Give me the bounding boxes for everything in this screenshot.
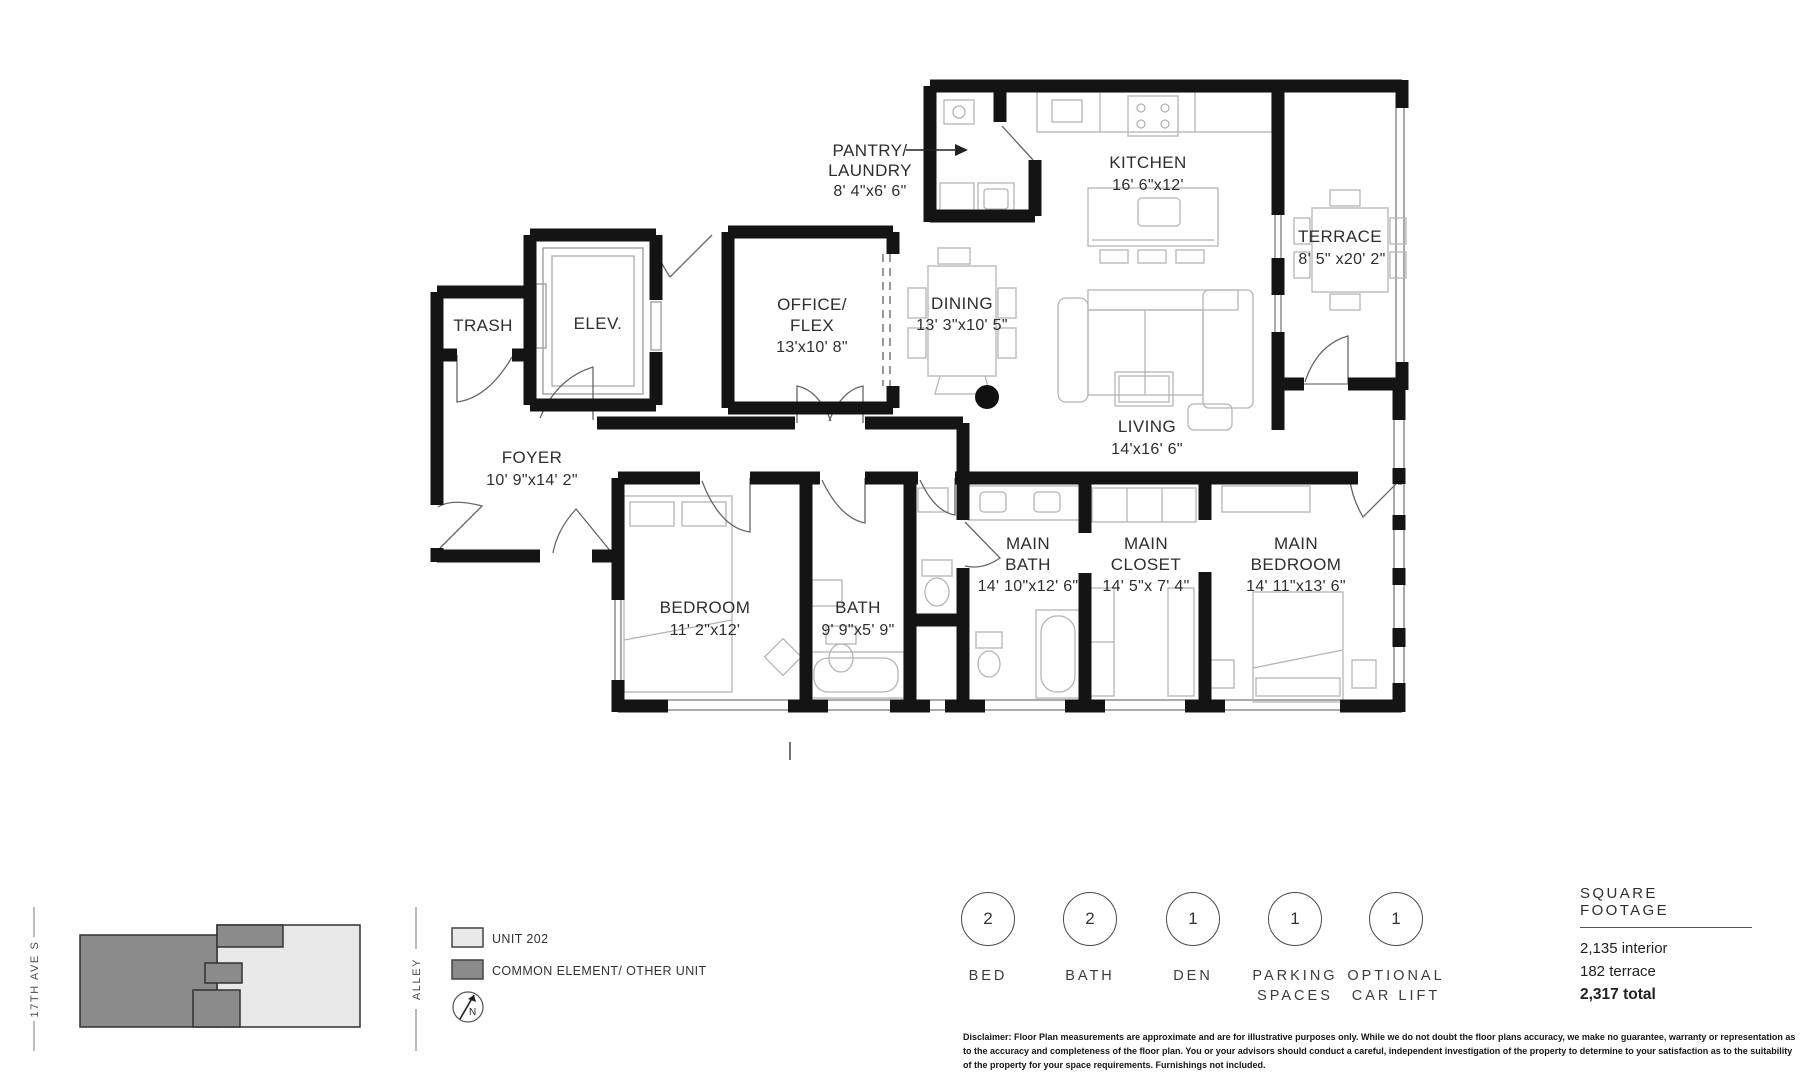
legend-label-unit: UNIT 202 (492, 932, 548, 946)
north-compass-icon: N (453, 992, 483, 1022)
room-label-office: OFFICE/ (777, 295, 847, 314)
room-label-pantry: PANTRY/ (833, 141, 908, 160)
room-label-pantry: LAUNDRY (828, 161, 912, 180)
room-dim-bedroom: 11' 2"x12' (670, 622, 741, 639)
svg-text:17TH AVE S: 17TH AVE S (29, 941, 41, 1018)
room-label-main-closet: CLOSET (1111, 555, 1181, 574)
room-label-main-bedroom: BEDROOM (1251, 555, 1342, 574)
street-left: 17TH AVE S (29, 907, 41, 1051)
room-dim-main-closet: 14' 5"x 7' 4" (1102, 578, 1189, 595)
room-dim-main-bedroom: 14' 11"x13' 6" (1246, 578, 1346, 595)
stat-parking-count: 1 (1268, 892, 1322, 946)
room-label-kitchen: KITCHEN (1109, 153, 1186, 172)
room-dim-kitchen: 16' 6"x12' (1112, 177, 1184, 194)
stat-car-lift-count: 1 (1369, 892, 1423, 946)
room-label-main-bath: BATH (1005, 555, 1051, 574)
sqft-total: 2,317 total (1580, 983, 1790, 1006)
room-dim-living: 14'x16' 6" (1111, 441, 1183, 458)
stat-den-count: 1 (1166, 892, 1220, 946)
north-label: N (469, 1007, 476, 1018)
square-footage: SQUARE FOOTAGE 2,135 interior 182 terrac… (1580, 885, 1790, 1006)
legend-swatch-unit (452, 928, 483, 947)
sqft-interior: 2,135 interior (1580, 938, 1790, 961)
sqft-terrace: 182 terrace (1580, 961, 1790, 984)
room-label-elevator: ELEV. (574, 314, 623, 333)
square-footage-title: SQUARE FOOTAGE (1580, 885, 1752, 928)
room-label-main-bedroom: MAIN (1274, 534, 1318, 553)
room-dim-bath: 9' 9"x5' 9" (821, 622, 894, 639)
room-dim-office: 13'x10' 8" (776, 339, 848, 356)
room-label-bedroom: BEDROOM (660, 598, 751, 617)
legend-label-common: COMMON ELEMENT/ OTHER UNIT (492, 964, 707, 978)
pantry-arrow (906, 144, 968, 156)
disclaimer-text: Disclaimer: Floor Plan measurements are … (963, 1031, 1798, 1073)
legend-swatch-common (452, 960, 483, 979)
room-dim-terrace: 8' 5" x20' 2" (1298, 251, 1385, 268)
room-label-main-bath: MAIN (1006, 534, 1050, 553)
room-dim-foyer: 10' 9"x14' 2" (486, 472, 578, 489)
room-label-dining: DINING (931, 294, 993, 313)
room-dim-pantry: 8' 4"x6' 6" (833, 183, 906, 200)
room-label-living: LIVING (1118, 417, 1176, 436)
room-dim-main-bath: 14' 10"x12' 6" (978, 578, 1079, 595)
room-label-main-closet: MAIN (1124, 534, 1168, 553)
office-dashed-opening (883, 254, 890, 386)
room-label-foyer: FOYER (502, 448, 563, 467)
room-label-office: FLEX (790, 316, 834, 335)
street-right: ALLEY (411, 907, 423, 1051)
floor-plan: PANTRY/ LAUNDRY 8' 4"x6' 6" KITCHEN 16' … (0, 0, 1800, 780)
stat-car-lift: 1 OPTIONAL CAR LIFT (1326, 892, 1466, 1007)
room-dim-dining: 13' 3"x10' 5" (916, 317, 1008, 334)
walls (437, 80, 1402, 712)
stat-bed-count: 2 (961, 892, 1015, 946)
door-swings (438, 126, 1400, 567)
room-label-trash: TRASH (453, 316, 513, 335)
stat-bath-count: 2 (1063, 892, 1117, 946)
stat-car-lift-label: OPTIONAL (1326, 966, 1466, 986)
legend: UNIT 202 COMMON ELEMENT/ OTHER UNIT N (440, 915, 800, 1045)
room-label-terrace: TERRACE (1298, 227, 1382, 246)
key-plan: 17TH AVE S ALLEY (20, 905, 430, 1055)
dining-dot (975, 385, 999, 409)
svg-text:ALLEY: ALLEY (411, 958, 423, 1000)
room-label-bath: BATH (835, 598, 881, 617)
